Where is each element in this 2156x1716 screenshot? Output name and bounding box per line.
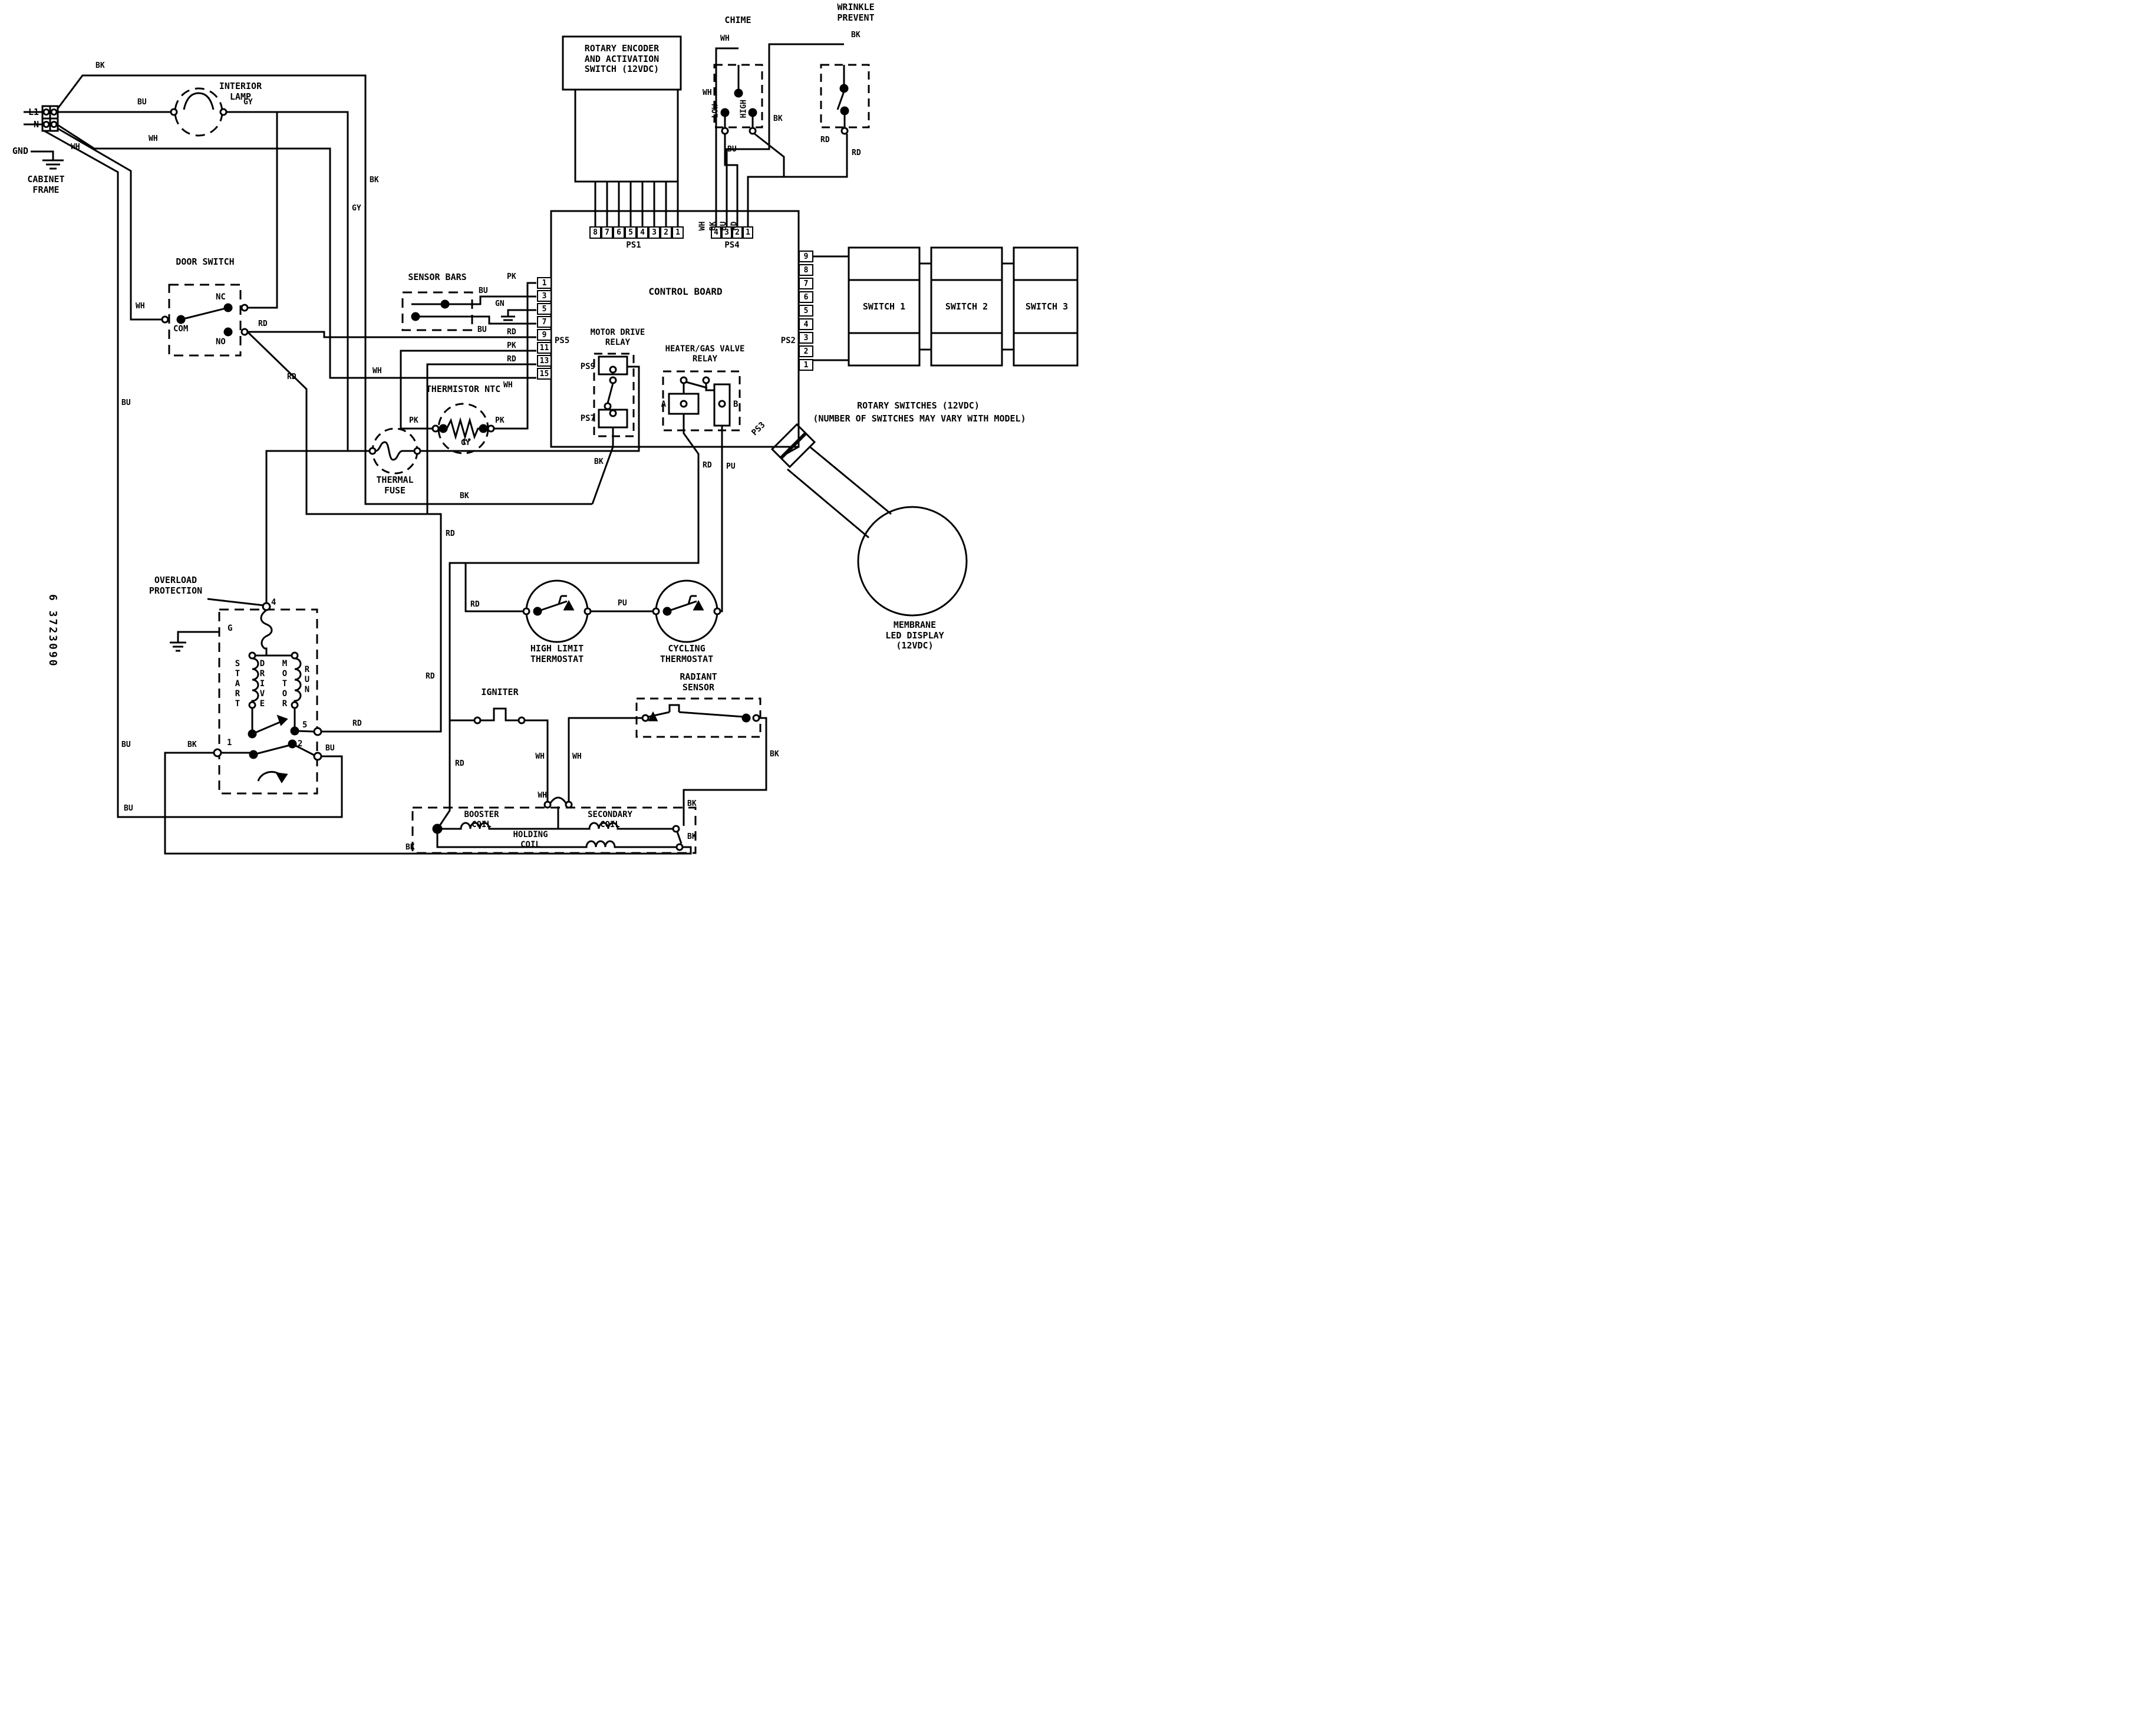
cabinet-frame-label: CABINET FRAME xyxy=(27,174,64,195)
wire-label-pu: PU xyxy=(618,599,627,608)
wire-label-pu: PU xyxy=(726,462,736,471)
holding-coil-label: HOLDING COIL xyxy=(513,830,548,849)
wire-label-bk: BK xyxy=(687,799,697,808)
wire-label-bk: BK xyxy=(709,222,718,231)
wire-label-pk: PK xyxy=(507,272,516,281)
connector-ps5: 1 3 5 7 9 11 13 15 xyxy=(537,277,552,381)
ps2-pin: 7 xyxy=(799,278,813,289)
control-board-label: CONTROL BOARD xyxy=(648,286,722,298)
switch1-label: SWITCH 1 xyxy=(863,302,905,312)
high-limit-label: HIGH LIMIT THERMOSTAT xyxy=(530,644,583,664)
cycling-thermostat xyxy=(653,581,720,642)
interior-lamp xyxy=(171,88,226,136)
heater-gas-valve-relay xyxy=(663,371,740,430)
wire-label-rd: RD xyxy=(507,328,516,337)
ps1-pin: 2 xyxy=(660,226,672,239)
ps4-label: PS4 xyxy=(724,241,739,251)
l1-label: L1 xyxy=(28,107,39,118)
ps2-pin: 2 xyxy=(799,345,813,357)
ps1-pin: 3 xyxy=(648,226,660,239)
wire-label-bu: BU xyxy=(720,222,728,231)
igniter xyxy=(450,709,548,802)
wire-label-bu: BU xyxy=(124,804,133,813)
ps2-pin: 6 xyxy=(799,291,813,303)
wire-label-wh: WH xyxy=(71,143,80,151)
wire-wh-main xyxy=(58,125,536,378)
wire-label-rd: RD xyxy=(820,136,830,144)
wire-label-wh: WH xyxy=(503,381,513,390)
wh-hump-junction xyxy=(545,798,572,829)
ps1-pin: 6 xyxy=(613,226,625,239)
ps2-pin: 1 xyxy=(799,359,813,371)
schematic-canvas xyxy=(0,0,1079,858)
wire-label-wh: WH xyxy=(538,791,547,800)
wire-label-bu: BU xyxy=(727,145,737,154)
ps2-pin: 5 xyxy=(799,305,813,317)
ps7-label: PS7 xyxy=(581,414,595,424)
chime-high-label: HIGH xyxy=(740,100,749,118)
door-no-label: NO xyxy=(216,337,226,347)
wire-label-wh: WH xyxy=(720,34,730,43)
ps1-label: PS1 xyxy=(626,241,641,251)
wire-label-rd: RD xyxy=(455,759,464,768)
motor-drive-relay xyxy=(594,354,634,436)
wire-label-bu: BU xyxy=(477,325,487,334)
wire-label-bk: BK xyxy=(851,31,861,39)
wire-label-wh: WH xyxy=(698,222,707,231)
wire-nc xyxy=(248,112,277,308)
wire-label-rd: RD xyxy=(470,600,480,609)
motor-terminal-5: 5 xyxy=(302,720,307,730)
wire-label-rd: RD xyxy=(258,320,268,328)
thermal-fuse xyxy=(370,429,420,473)
wire-bk-main xyxy=(58,75,613,504)
motor-run-label: RUN xyxy=(303,665,311,695)
secondary-coil-label: SECONDARY COIL xyxy=(588,810,632,829)
ps5-pin: 15 xyxy=(537,368,552,380)
gnd-label: GND xyxy=(12,146,28,157)
chime xyxy=(714,65,762,134)
cycling-label: CYCLING THERMOSTAT xyxy=(660,644,713,664)
ps5-pin: 9 xyxy=(537,329,552,341)
motor-terminal-4: 4 xyxy=(271,598,276,608)
wire-label-bu: BU xyxy=(137,98,147,107)
wire-label-rd: RD xyxy=(852,149,861,157)
control-board-outline xyxy=(551,211,799,447)
ps5-label: PS5 xyxy=(555,336,569,346)
ps5-pin: 5 xyxy=(537,303,552,315)
ps5-pin: 3 xyxy=(537,290,552,302)
membrane-label: MEMBRANE LED DISPLAY (12VDC) xyxy=(885,620,944,651)
n-label: N xyxy=(34,120,39,130)
connector-ps1: 8 7 6 5 4 3 2 1 xyxy=(589,226,684,239)
rotary-encoder-label: ROTARY ENCODER AND ACTIVATION SWITCH (12… xyxy=(585,44,659,75)
cabinet-ground-symbol xyxy=(31,151,64,169)
wire-label-bu: BU xyxy=(325,744,335,753)
interior-lamp-label: INTERIOR LAMP xyxy=(219,81,262,102)
part-number: 6 3723090 xyxy=(47,594,59,668)
chime-low-label: LOW xyxy=(711,104,720,118)
overload-label: OVERLOAD PROTECTION xyxy=(149,575,202,596)
wire-bk-bottom xyxy=(165,753,691,854)
wiring-diagram: 1 3 5 7 9 11 13 15 8 7 6 5 4 3 2 1 4 3 2… xyxy=(0,0,1079,858)
rotary-switches-note: (NUMBER OF SWITCHES MAY VARY WITH MODEL) xyxy=(813,414,1026,424)
ps2-label: PS2 xyxy=(781,336,796,346)
thermal-fuse-label: THERMAL FUSE xyxy=(376,475,413,496)
wrinkle-prevent-label: WRINKLE PREVENT xyxy=(837,2,874,23)
motor xyxy=(170,599,321,793)
wire-label-rd: RD xyxy=(287,373,296,381)
motor-start-label: START xyxy=(233,659,242,709)
ps2-pin: 8 xyxy=(799,264,813,276)
wire-label-wh: WH xyxy=(149,134,158,143)
wire-label-pk: PK xyxy=(409,416,418,425)
motor-motor-label: MOTOR xyxy=(281,659,289,709)
motor-drive-label: DRIVE xyxy=(258,659,266,709)
wire-label-bu: BU xyxy=(121,398,131,407)
wire-label-gy: GY xyxy=(243,98,253,107)
ps5-pin: 11 xyxy=(537,342,552,354)
door-switch-label: DOOR SWITCH xyxy=(176,257,234,268)
door-switch xyxy=(162,285,248,355)
motor-terminal-2: 2 xyxy=(298,739,302,749)
wire-label-bk: BK xyxy=(187,740,197,749)
wire-label-gn: GN xyxy=(495,299,505,308)
wire-label-rd: RD xyxy=(426,672,435,681)
wire-label-gy: GY xyxy=(352,204,361,213)
wire-label-bk: BK xyxy=(770,750,779,759)
wire-label-bk: BK xyxy=(95,61,105,70)
ps1-pin: 8 xyxy=(589,226,601,239)
high-limit-thermostat xyxy=(523,581,591,642)
radiant-sensor-label: RADIANT SENSOR xyxy=(680,672,717,693)
wire-label-bk: BK xyxy=(773,114,783,123)
ps2-pin: 3 xyxy=(799,332,813,344)
switch3-label: SWITCH 3 xyxy=(1026,302,1068,312)
ps2-pin: 4 xyxy=(799,318,813,330)
chime-label: CHIME xyxy=(724,15,751,26)
thermistor-label: THERMISTOR NTC xyxy=(426,384,500,395)
motor-drive-relay-label: MOTOR DRIVE RELAY xyxy=(591,328,645,347)
heater-relay-label: HEATER/GAS VALVE RELAY xyxy=(665,344,745,364)
ps3-membrane xyxy=(772,424,967,615)
thermistor xyxy=(401,283,536,453)
wire-label-bk: BK xyxy=(406,843,415,852)
wire-relay-drops xyxy=(439,414,722,826)
wire-label-rd: RD xyxy=(507,355,516,364)
wire-label-wh: WH xyxy=(136,302,145,311)
connector-ps2: 9 8 7 6 5 4 3 2 1 xyxy=(799,251,813,373)
door-nc-label: NC xyxy=(216,292,226,302)
rotary-switches-caption: ROTARY SWITCHES (12VDC) xyxy=(857,401,980,411)
wire-label-wh: WH xyxy=(572,752,582,761)
wire-label-rd: RD xyxy=(730,222,739,231)
wire-label-rd: RD xyxy=(703,461,712,470)
door-com-label: COM xyxy=(173,324,188,334)
wire-gy-main xyxy=(266,367,639,603)
wire-label-pk: PK xyxy=(507,341,516,350)
ps1-pin: 1 xyxy=(672,226,684,239)
wire-label-bu: BU xyxy=(479,286,488,295)
ps1-pin: 7 xyxy=(601,226,613,239)
wire-label-rd: RD xyxy=(446,529,455,538)
wire-label-wh: WH xyxy=(535,752,545,761)
gn-ground-symbol xyxy=(501,310,536,324)
wire-label-wh: WH xyxy=(372,367,382,376)
relay-b-label: B xyxy=(733,400,738,410)
wire-label-pk: PK xyxy=(495,416,505,425)
ps9-label: PS9 xyxy=(581,362,595,372)
wire-label-wh: WH xyxy=(703,88,712,97)
wire-label-bk: BK xyxy=(460,492,469,500)
motor-terminal-g: G xyxy=(228,624,232,634)
igniter-label: IGNITER xyxy=(481,687,518,698)
ps1-pin: 5 xyxy=(625,226,637,239)
wire-label-bk: BK xyxy=(687,832,697,841)
ps5-pin: 7 xyxy=(537,316,552,328)
wire-label-bu: BU xyxy=(121,740,131,749)
sensor-bars-label: SENSOR BARS xyxy=(408,272,466,283)
sensor-bars xyxy=(403,292,536,330)
wrinkle-prevent xyxy=(821,65,869,134)
booster-coil-label: BOOSTER COIL xyxy=(464,810,499,829)
coils-block xyxy=(413,808,695,853)
ps4-pin: 1 xyxy=(743,226,753,239)
ps5-pin: 1 xyxy=(537,277,552,289)
wire-label-gy: GY xyxy=(461,439,470,447)
wire-label-bk: BK xyxy=(370,176,379,185)
ps5-pin: 13 xyxy=(537,355,552,367)
wire-label-rd: RD xyxy=(352,719,362,728)
ps1-pin: 4 xyxy=(637,226,648,239)
relay-a-label: A xyxy=(661,400,666,410)
switch2-label: SWITCH 2 xyxy=(945,302,988,312)
wire-bu-main xyxy=(44,112,348,817)
wire-label-bk: BK xyxy=(594,457,604,466)
motor-terminal-1: 1 xyxy=(227,738,232,748)
ps2-pin: 9 xyxy=(799,251,813,262)
